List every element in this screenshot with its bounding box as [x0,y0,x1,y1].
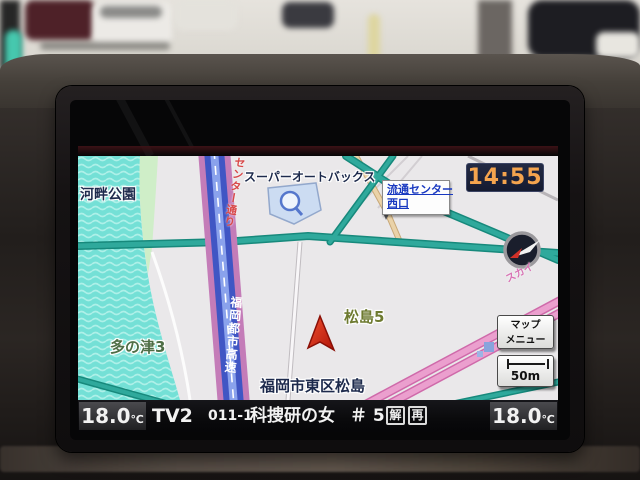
white-car-right [596,32,640,58]
scale-value: 50m [511,369,540,383]
maroon-car [25,0,95,40]
screen-hood-glow [78,146,558,156]
status-bar: 18.0℃ TV2 011-1 科捜研の女 ＃ 5 解 再 18.0℃ [78,400,558,432]
temperature-right: 18.0℃ [490,402,557,430]
scale-bar-icon [507,359,545,369]
signboard-line1: 流通センター [387,183,445,197]
temperature-right-unit: ℃ [542,413,555,426]
map-scale-button[interactable]: 50m [497,355,554,387]
white-van [175,0,237,30]
clock-display: 14:55 [466,163,544,192]
building-icon [477,351,483,357]
map-menu-line1: マップ [511,320,541,331]
episode-number: ＃ 5 [350,400,385,432]
screen-bezel: 河畔公園 スーパーオートバックス 流通センター 西口 14:55 松島5 多の津… [56,86,584,452]
broadcast-badge-commentary: 解 [386,406,405,425]
district-label-tanotsu: 多の津3 [110,336,165,357]
program-title: 科捜研の女 [250,400,335,432]
signboard-line2: 西口 [387,197,445,211]
current-position-arrow [308,316,334,350]
temperature-left-unit: ℃ [131,413,144,426]
map-menu-line2: メニュー [506,335,546,346]
current-address-label: 福岡市東区松島 [260,375,365,396]
floor-shadow [40,42,170,50]
map-menu-button[interactable]: マップ メニュー [497,315,554,349]
temperature-left-value: 18.0 [81,404,130,428]
park-label: 河畔公園 [80,184,136,204]
dark-car [282,2,334,28]
map-graphics [78,156,558,400]
temperature-left: 18.0℃ [79,402,146,430]
screen-glass: 河畔公園 スーパーオートバックス 流通センター 西口 14:55 松島5 多の津… [70,100,570,440]
map-view[interactable]: 河畔公園 スーパーオートバックス 流通センター 西口 14:55 松島5 多の津… [78,156,558,400]
glass-reflection [160,100,195,149]
channel-number: 011-1 [208,400,253,432]
building-icon [484,342,494,352]
nav-display: 河畔公園 スーパーオートバックス 流通センター 西口 14:55 松島5 多の津… [78,156,558,432]
intersection-signboard: 流通センター 西口 [382,180,450,215]
av-source: TV2 [152,400,193,432]
photo-of-car-nav-screen: 河畔公園 スーパーオートバックス 流通センター 西口 14:55 松島5 多の津… [0,0,640,480]
broadcast-badge-rerun: 再 [408,406,427,425]
district-label-matsushima: 松島5 [344,306,384,327]
autobacs-label: スーパーオートバックス [244,168,376,185]
suv-windows [100,6,162,18]
temperature-right-value: 18.0 [492,404,541,428]
